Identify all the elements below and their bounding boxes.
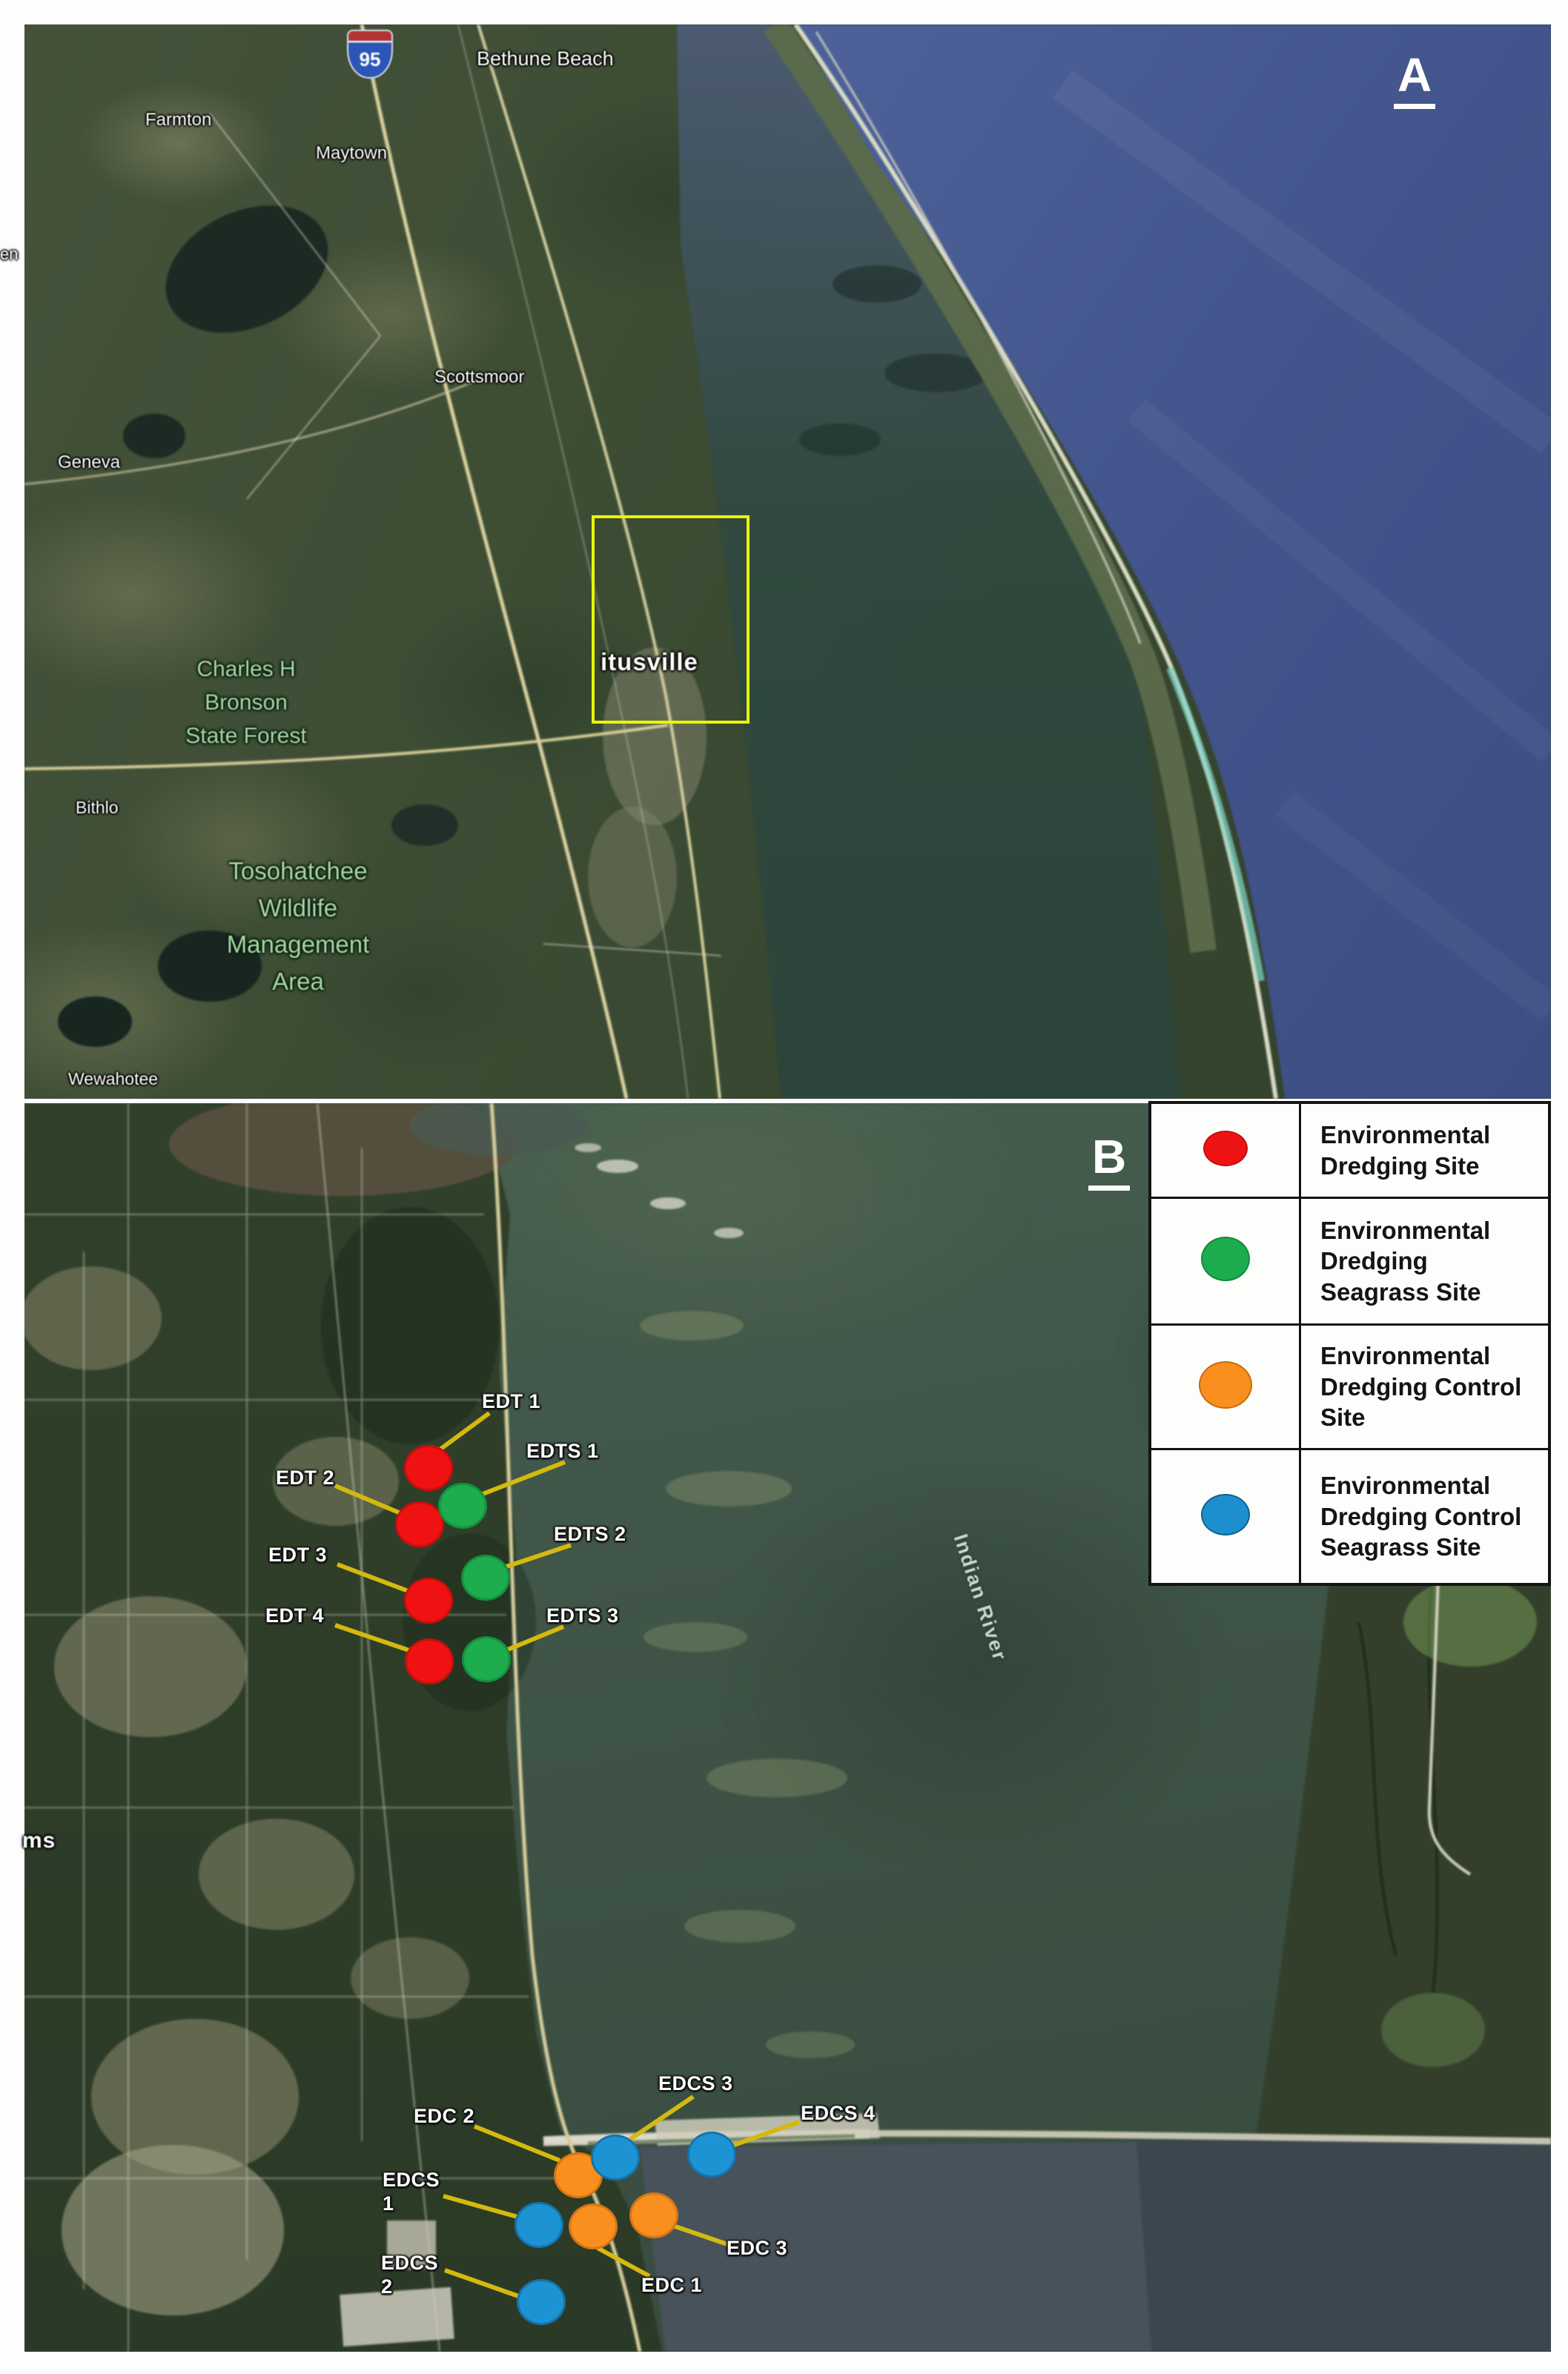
legend-label-control: Environmental Dredging Control Site: [1320, 1340, 1547, 1432]
legend-label-control_seagrass: Environmental Dredging Control Seagrass …: [1320, 1470, 1547, 1562]
panel-a-label-en: en: [0, 245, 18, 263]
legend-dot-control_seagrass-icon: [1201, 1494, 1250, 1535]
panel-a-geography: [24, 24, 1551, 1099]
legend-label-seagrass: Environmental Dredging Seagrass Site: [1320, 1215, 1547, 1307]
legend-dot-seagrass-icon: [1201, 1237, 1250, 1281]
study-area-rectangle: [592, 515, 750, 724]
legend-row-seagrass: Environmental Dredging Seagrass Site: [1150, 1198, 1549, 1324]
legend-dot-control-icon: [1199, 1361, 1252, 1409]
panel-a-regional-map: 95 A: [24, 24, 1551, 1099]
legend-row-control: Environmental Dredging Control Site: [1150, 1324, 1549, 1449]
route-west: [24, 725, 668, 769]
lake: [145, 181, 348, 358]
panel-a-letter: A: [1394, 51, 1435, 109]
legend: Environmental Dredging SiteEnvironmental…: [1148, 1101, 1551, 1586]
legend-dot-dredging-icon: [1203, 1131, 1248, 1166]
legend-row-dredging: Environmental Dredging Site: [1150, 1102, 1549, 1198]
legend-row-control_seagrass: Environmental Dredging Control Seagrass …: [1150, 1449, 1549, 1584]
white-buildings: [340, 2287, 454, 2347]
interstate-95-number: 95: [360, 48, 381, 71]
interstate-95-road: [362, 24, 626, 1099]
panel-b-letter: B: [1088, 1133, 1130, 1191]
two-panel-satellite-figure: 95 A: [0, 0, 1568, 2374]
legend-label-dredging: Environmental Dredging Site: [1320, 1120, 1547, 1181]
